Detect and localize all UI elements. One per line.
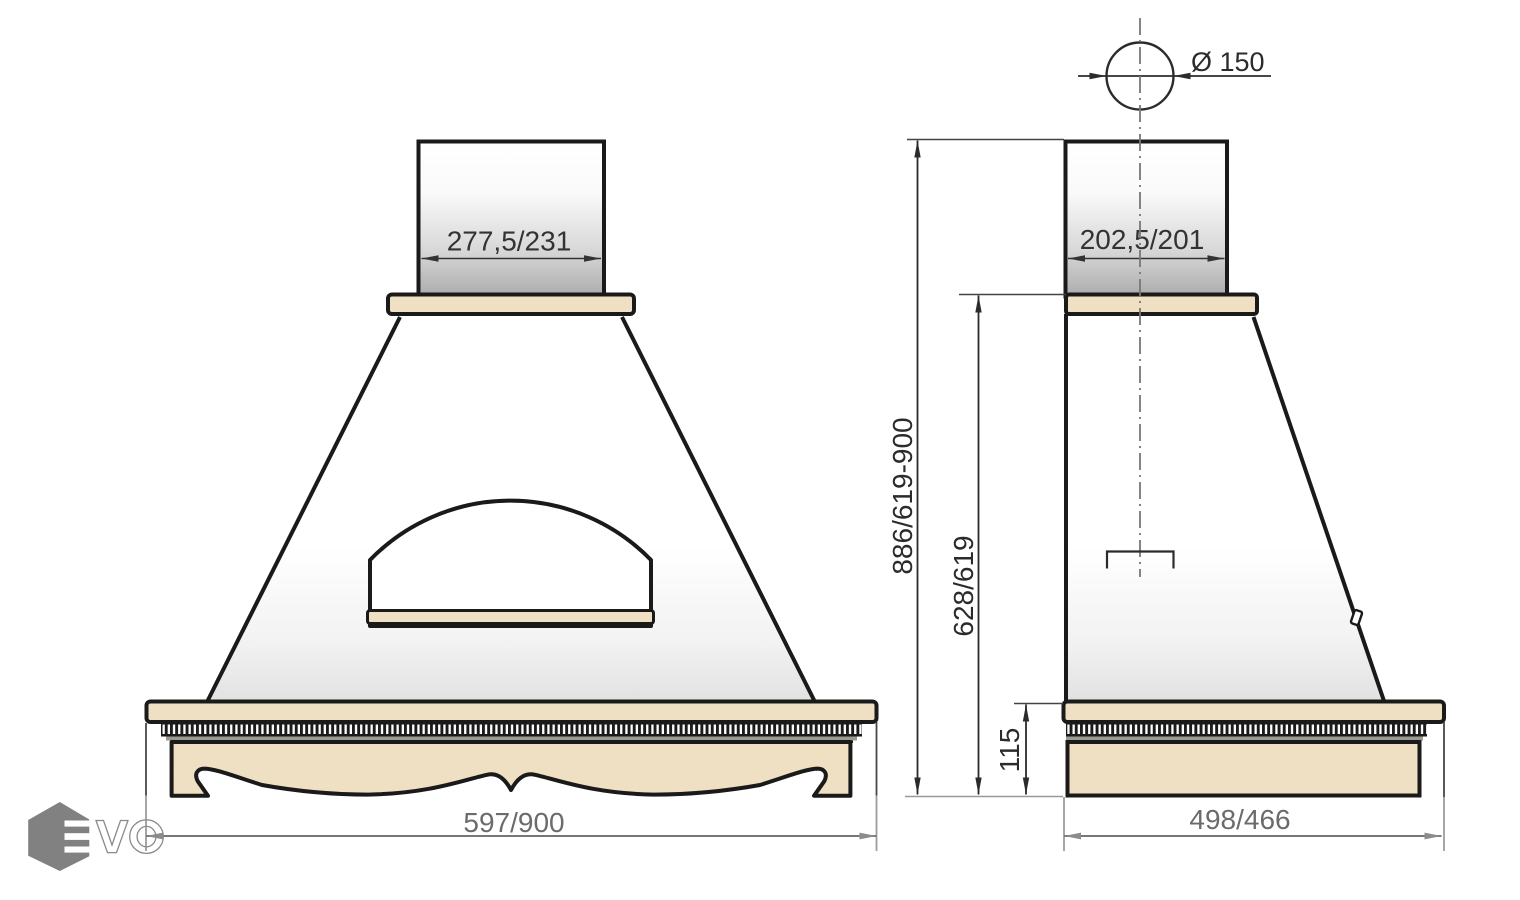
svg-text:498/466: 498/466 bbox=[1189, 804, 1290, 835]
svg-text:277,5/231: 277,5/231 bbox=[447, 226, 572, 257]
svg-text:628/619: 628/619 bbox=[948, 535, 979, 636]
svg-text:115: 115 bbox=[994, 728, 1025, 773]
svg-text:597/900: 597/900 bbox=[463, 807, 564, 838]
svg-text:886/619-900: 886/619-900 bbox=[887, 417, 918, 574]
svg-text:Ø 150: Ø 150 bbox=[1191, 47, 1265, 77]
svg-text:202,5/201: 202,5/201 bbox=[1080, 224, 1205, 255]
